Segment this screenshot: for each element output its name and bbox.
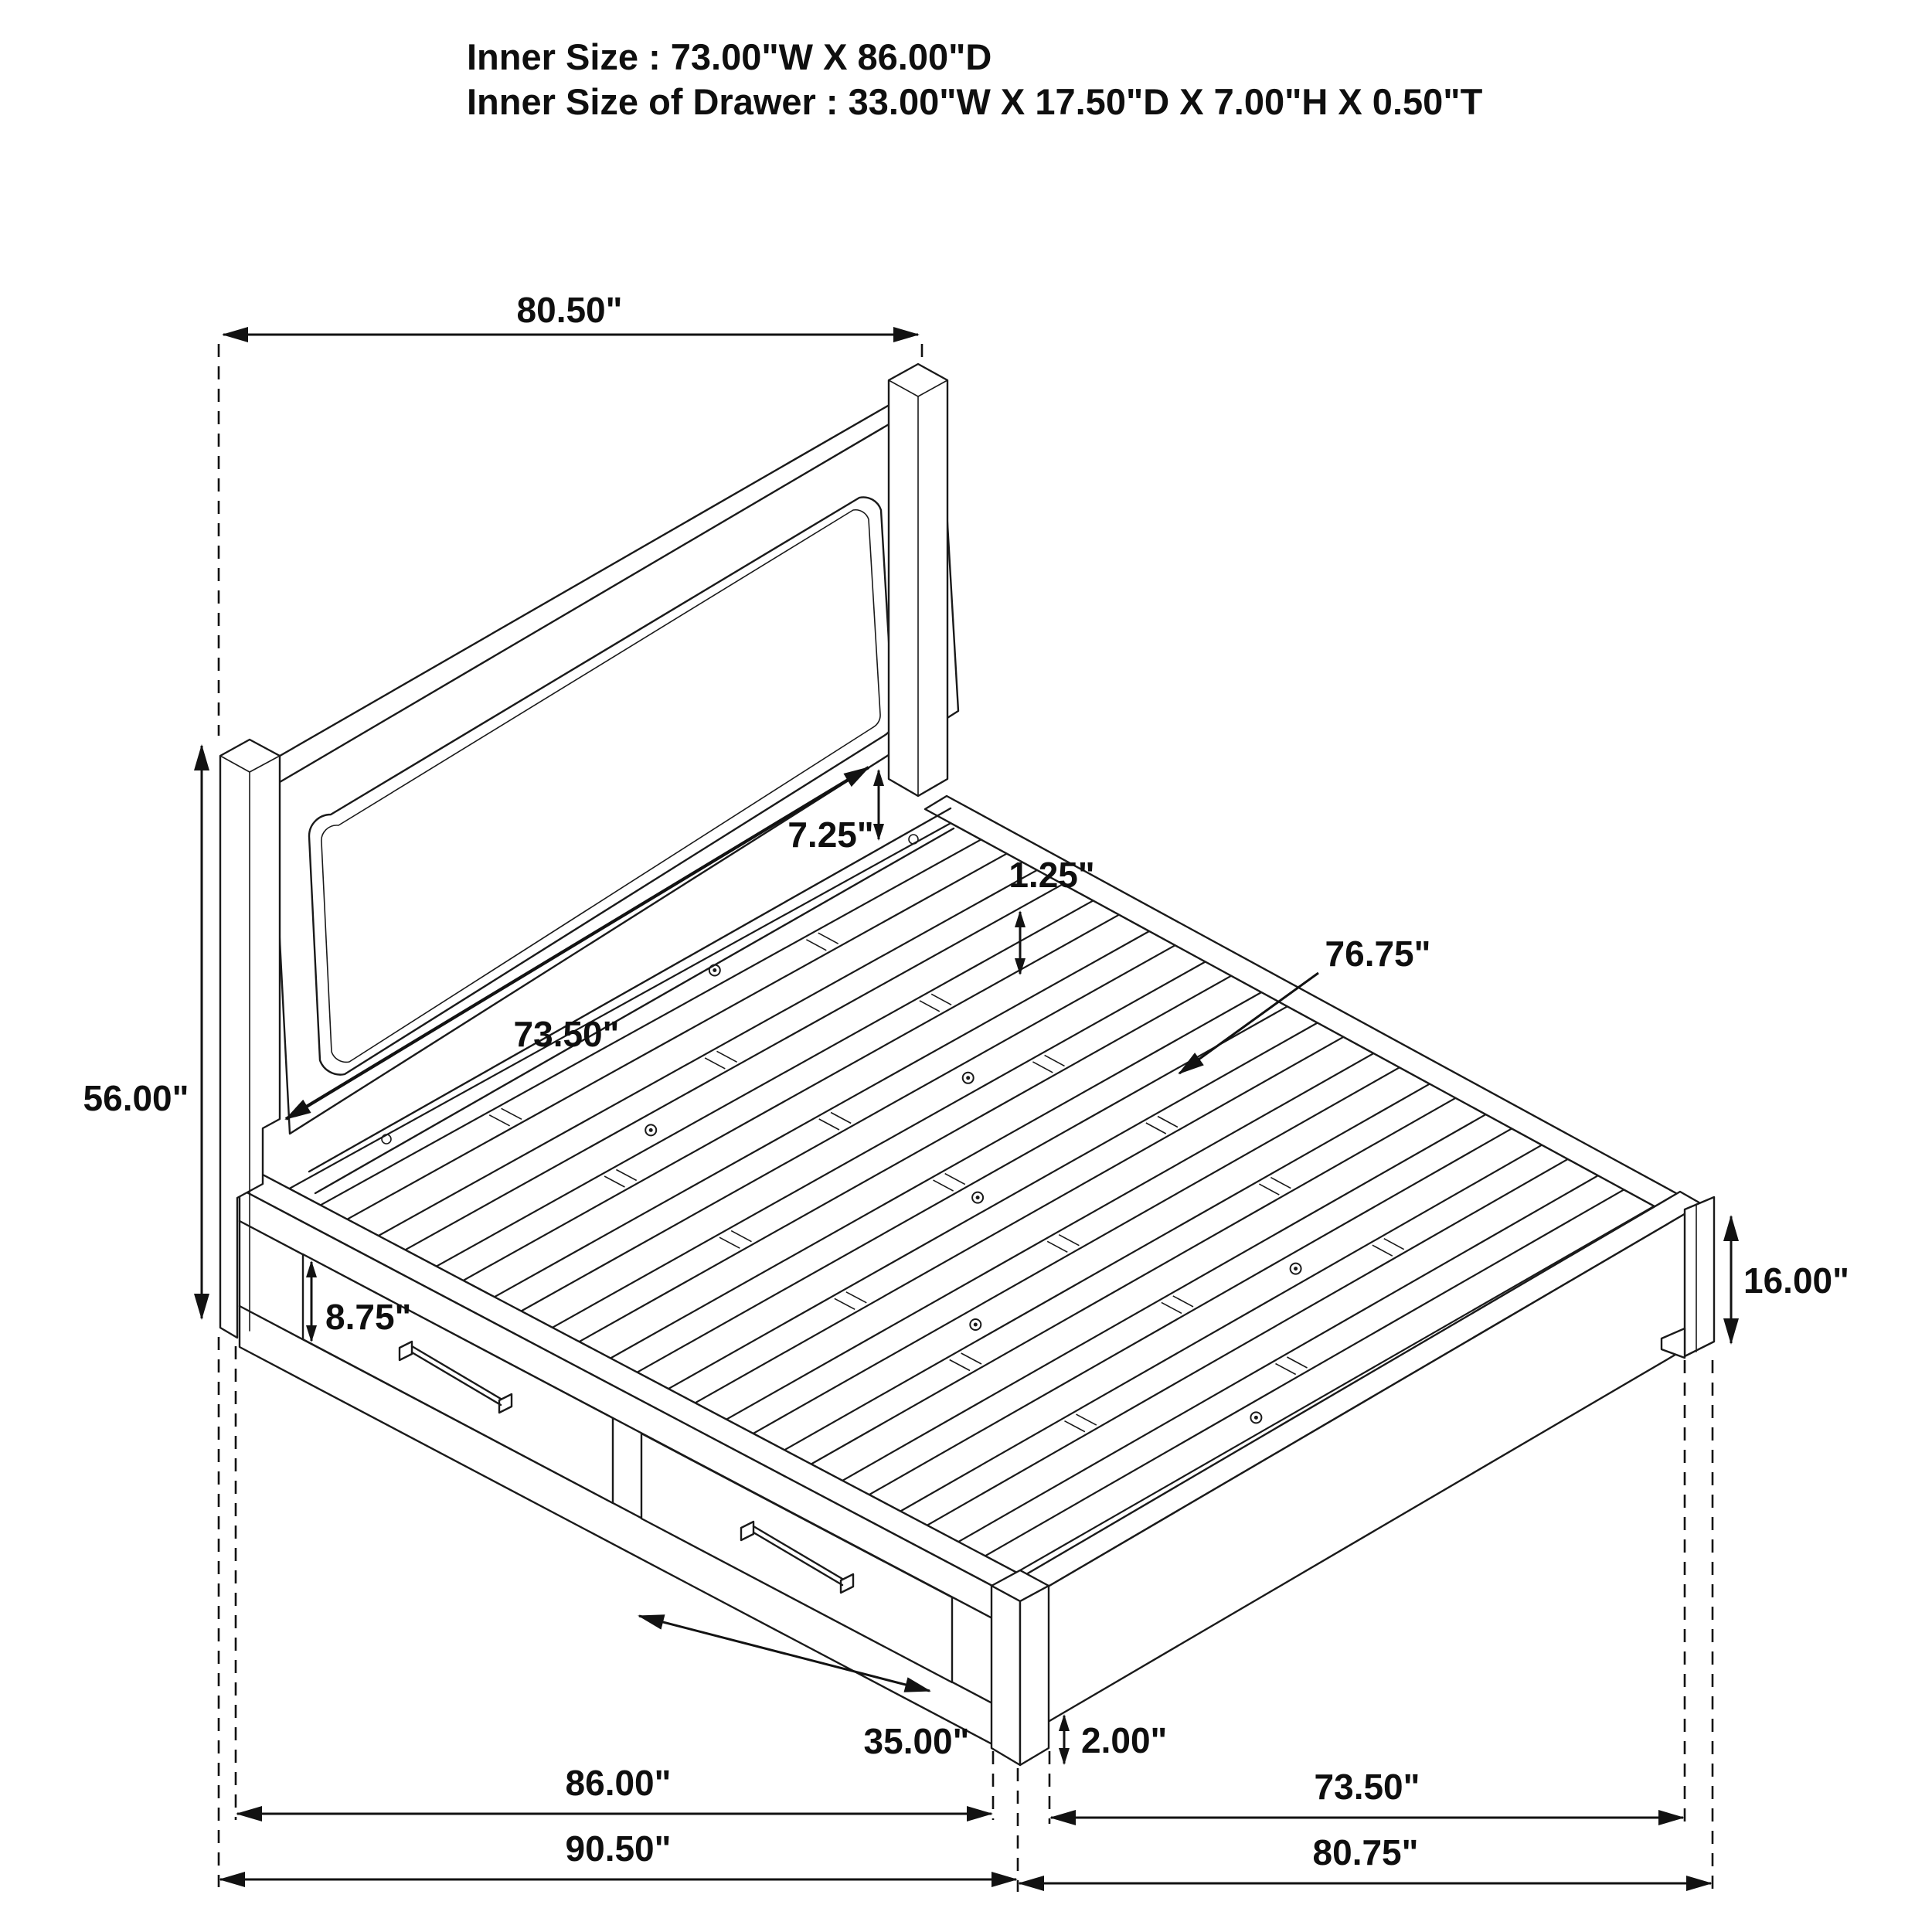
slat-support-tick	[920, 1001, 940, 1012]
screw-icon	[974, 1323, 978, 1327]
slat-support-tick	[1372, 1245, 1393, 1256]
screw-icon	[1254, 1416, 1258, 1420]
slat-support-tick	[719, 1237, 740, 1248]
title-block: Inner Size : 73.00"W X 86.00"D Inner Siz…	[467, 36, 1483, 122]
slat-support-tick	[731, 1231, 751, 1242]
dim-drawer-width-label: 35.00"	[864, 1721, 970, 1761]
bed-dimension-diagram-page: Inner Size : 73.00"W X 86.00"D Inner Siz…	[0, 0, 1932, 1932]
dim-overall-depth: 90.50"	[220, 1828, 1016, 1879]
slat-support-tick	[604, 1176, 624, 1187]
slat-support-tick	[616, 1170, 636, 1181]
slat-support-tick	[717, 1051, 737, 1062]
slat-support-tick	[1162, 1302, 1182, 1313]
slat-support-tick	[1047, 1241, 1067, 1252]
headboard-right-post	[889, 364, 947, 796]
slat-support-tick	[806, 940, 826, 951]
slat-support-tick	[1065, 1421, 1085, 1432]
dim-overall-depth-label: 90.50"	[566, 1828, 672, 1869]
dim-frame-height: 16.00"	[1731, 1216, 1849, 1343]
slat-support-tick	[705, 1058, 725, 1069]
screw-icon	[966, 1076, 970, 1080]
bed-technical-drawing: Inner Size : 73.00"W X 86.00"D Inner Siz…	[0, 0, 1932, 1932]
dim-inner-depth: 86.00"	[237, 1763, 992, 1814]
dim-frame-height-label: 16.00"	[1743, 1260, 1849, 1301]
slat-support-tick	[1032, 1062, 1053, 1073]
slat-support-tick	[1045, 1055, 1065, 1066]
slat-support-tick	[489, 1115, 509, 1126]
dim-foot-inner-width: 73.50"	[1051, 1767, 1683, 1818]
title-line-1: Inner Size : 73.00"W X 86.00"D	[467, 36, 992, 77]
dim-inner-depth-label: 86.00"	[566, 1763, 672, 1803]
slat-support-tick	[831, 1113, 851, 1124]
dim-headboard-inner-width-label: 73.50"	[514, 1014, 620, 1054]
dim-foot-overall-width: 80.75"	[1019, 1832, 1711, 1883]
dim-headboard-height: 56.00"	[83, 746, 202, 1318]
screw-icon	[649, 1128, 653, 1132]
slat-support-tick	[1270, 1178, 1291, 1189]
slat-support-tick	[1158, 1117, 1178, 1128]
slat-support-tick	[1077, 1414, 1097, 1425]
slat-support-tick	[502, 1108, 522, 1119]
foot-corner-leg	[992, 1570, 1049, 1765]
slat-support-tick	[1259, 1184, 1279, 1195]
slat-support-tick	[835, 1298, 855, 1309]
dim-headboard-width: 80.50"	[223, 290, 918, 335]
slat-support-tick	[934, 1180, 954, 1191]
dim-headboard-width-label: 80.50"	[517, 290, 623, 330]
screw-icon	[976, 1196, 980, 1199]
dim-panel-gap-label: 7.25"	[787, 815, 873, 855]
dim-headboard-height-label: 56.00"	[83, 1078, 189, 1118]
dim-foot-overall-width-label: 80.75"	[1313, 1832, 1419, 1872]
slat-support-tick	[950, 1360, 970, 1371]
slat-support-tick	[1173, 1296, 1193, 1307]
dim-foot-inner-width-label: 73.50"	[1315, 1767, 1420, 1807]
slat-support-tick	[1059, 1235, 1079, 1246]
slat-support-tick	[945, 1174, 965, 1185]
dim-drawer-height-label: 8.75"	[325, 1297, 411, 1337]
slat-support-tick	[818, 933, 838, 944]
dim-ground-clearance-label: 2.00"	[1081, 1720, 1167, 1760]
dim-slat-inset-label: 1.25"	[1009, 855, 1094, 895]
slat-support-tick	[931, 994, 951, 1005]
slat-support-tick	[1287, 1357, 1307, 1368]
slat-support-tick	[819, 1119, 839, 1130]
screw-icon	[1294, 1267, 1298, 1270]
dim-slat-length-label: 76.75"	[1325, 934, 1431, 974]
slat-support-tick	[1384, 1239, 1404, 1250]
slat-support-tick	[961, 1353, 981, 1364]
slat-support-tick	[846, 1292, 866, 1303]
dim-ground-clearance: 2.00"	[1064, 1716, 1167, 1764]
slat-support-tick	[1276, 1364, 1296, 1375]
screw-icon	[713, 968, 716, 972]
slat-support-tick	[1146, 1123, 1166, 1134]
title-line-2: Inner Size of Drawer : 33.00"W X 17.50"D…	[467, 81, 1483, 122]
